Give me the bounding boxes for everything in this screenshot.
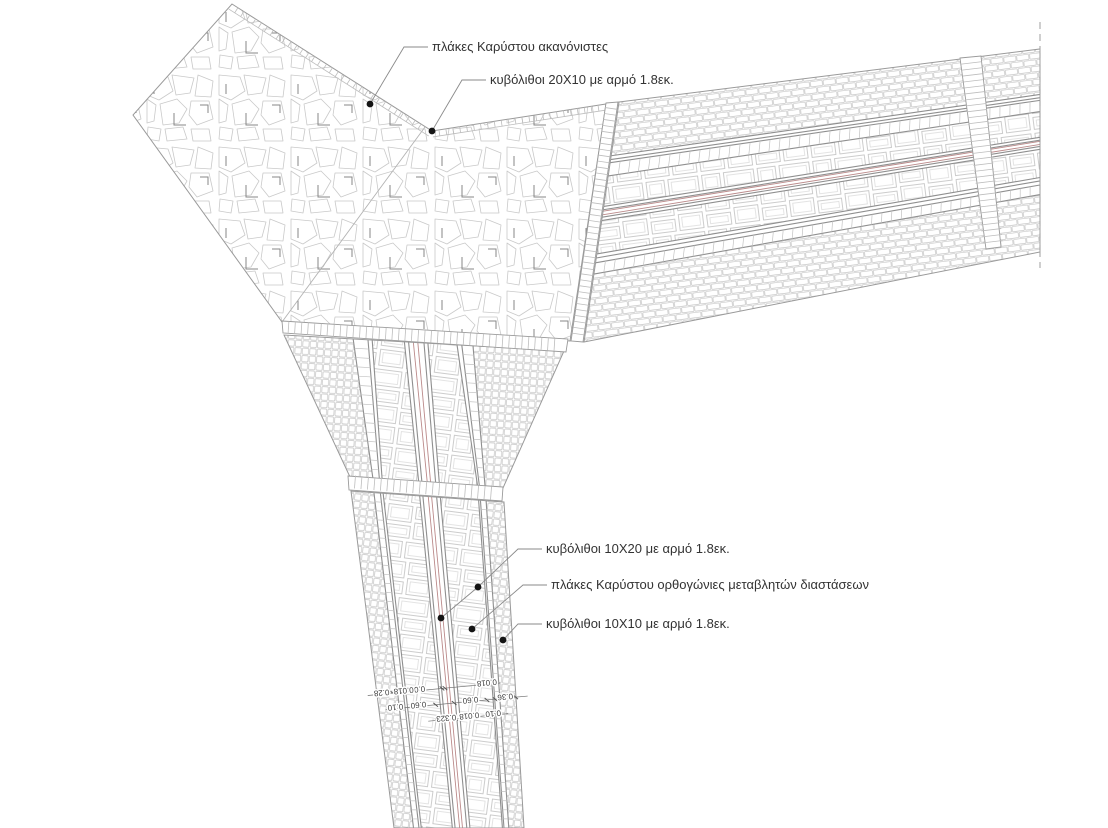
leader-cobble-20x10 <box>432 80 486 131</box>
dim-label: 0.323 <box>435 713 456 724</box>
dim-label: 0.28 <box>373 687 390 697</box>
leader-dot <box>475 584 482 591</box>
dim-label: 0.018 <box>458 710 479 721</box>
plaza-area <box>133 4 607 341</box>
leader-dot <box>500 637 507 644</box>
paving-plan-canvas: 0.0180.020.0180.280.360.600.600.100.100.… <box>0 0 1108 828</box>
label-cobble-20x10: κυβόλιθοι 20X10 με αρμό 1.8εκ. <box>490 72 674 87</box>
label-cobble-10x10: κυβόλιθοι 10X10 με αρμό 1.8εκ. <box>546 616 730 631</box>
leader-plaza <box>370 47 428 104</box>
leader-dot <box>429 128 436 135</box>
south-road-paving <box>351 491 524 828</box>
leader-dot <box>469 626 476 633</box>
dim-label: 0.60 <box>410 700 427 710</box>
label-slabs-rect: πλάκες Καρύστου ορθογώνιες μεταβλητών δι… <box>551 577 869 592</box>
plaza-outline <box>133 4 606 341</box>
dim-label: 0.60 <box>462 695 479 705</box>
dim-label: 0.018 <box>393 685 414 696</box>
dim-label: 0.10 <box>387 702 404 712</box>
label-cobble-10x20: κυβόλιθοι 10X20 με αρμό 1.8εκ. <box>546 541 730 556</box>
junction-paving <box>284 335 564 488</box>
dim-label: 0.018 <box>476 677 497 688</box>
label-plaza-slabs: πλάκες Καρύστου ακανόνιστες <box>432 39 608 54</box>
dim-label: 0.10 <box>484 708 501 718</box>
leader-dot <box>367 101 374 108</box>
plan-drawing: 0.0180.020.0180.280.360.600.600.100.100.… <box>0 0 1108 828</box>
dim-label: 0.36 <box>496 692 513 702</box>
leader-dot <box>438 615 445 622</box>
